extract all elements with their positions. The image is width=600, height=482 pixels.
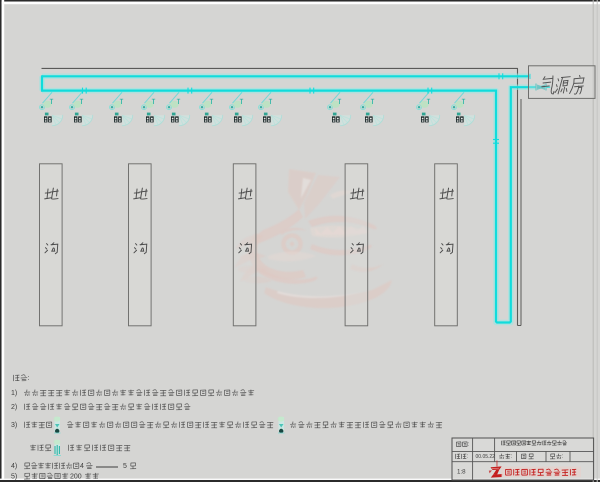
svg-text:4): 4): [11, 463, 17, 470]
svg-text:2): 2): [11, 404, 17, 411]
svg-text:3): 3): [11, 422, 17, 429]
svg-text:200: 200: [70, 474, 82, 481]
svg-text:1): 1): [11, 390, 17, 397]
svg-text:1:8: 1:8: [457, 469, 466, 476]
svg-text:5): 5): [11, 474, 17, 481]
svg-text:5: 5: [123, 463, 127, 470]
svg-text::: :: [28, 375, 30, 382]
svg-text:4: 4: [80, 463, 84, 470]
svg-text:00.05.22: 00.05.22: [476, 454, 496, 460]
